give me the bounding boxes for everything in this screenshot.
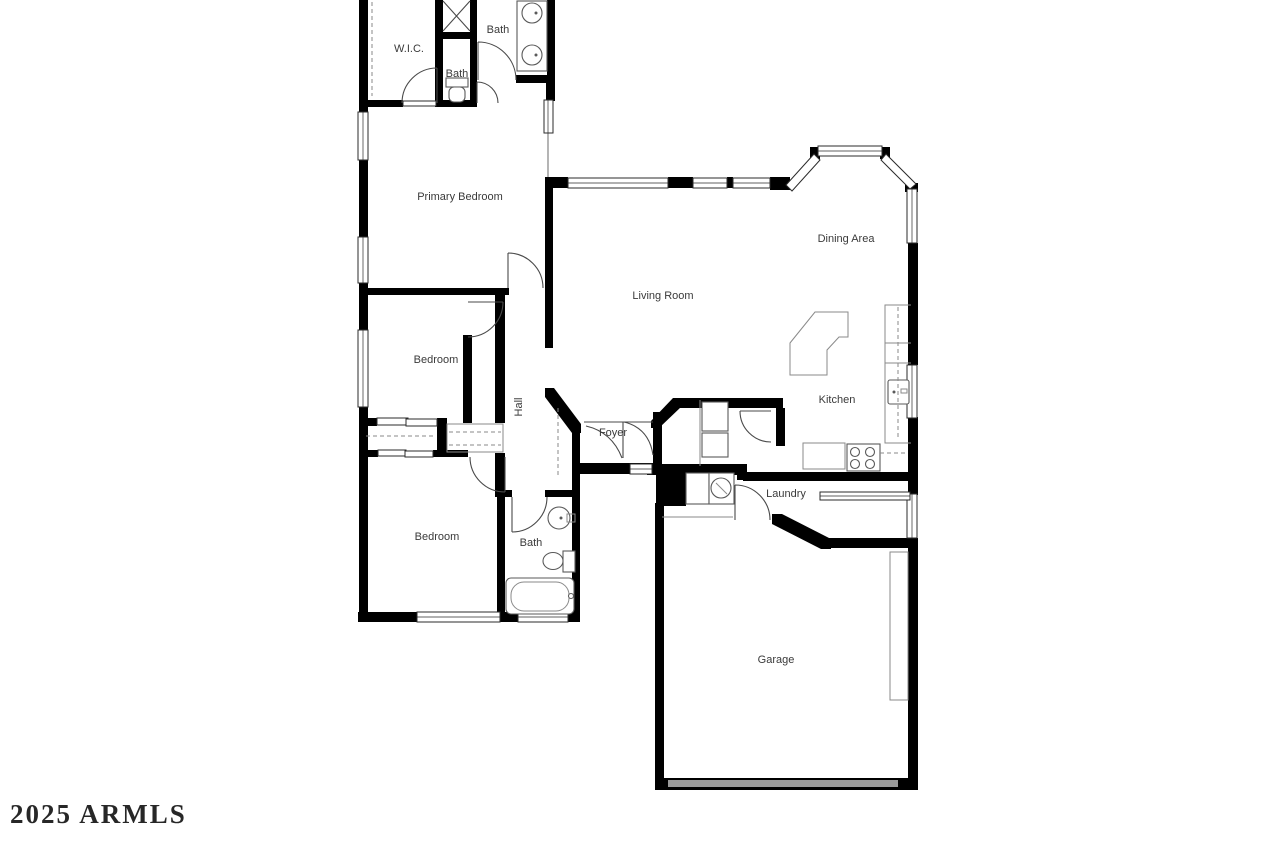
wall-shower-bath bbox=[470, 0, 477, 107]
door-pantry bbox=[740, 411, 771, 442]
door-primary-bedroom bbox=[508, 253, 543, 288]
wall-east-kitchen-lower bbox=[908, 417, 918, 495]
pantry-shelf-2 bbox=[702, 433, 728, 457]
wall-garage-north bbox=[825, 538, 915, 548]
closet-slider-bedroom3-b bbox=[405, 451, 433, 457]
wall-hall-east bbox=[545, 188, 553, 348]
wall-hall-west-upper bbox=[495, 295, 505, 423]
door-laundry bbox=[735, 485, 770, 520]
room-label-hall: Hall bbox=[513, 398, 525, 417]
wall-hall-angled bbox=[545, 388, 581, 433]
wall-garage-angled bbox=[772, 514, 831, 549]
wall-closet-top bbox=[359, 418, 377, 426]
room-label-bath-primary: Bath bbox=[487, 24, 510, 36]
pantry-shelf-1 bbox=[702, 402, 728, 431]
door-wic bbox=[402, 68, 437, 103]
room-label-bath-toilet: Bath bbox=[446, 68, 469, 80]
linen-shelf-lines bbox=[449, 432, 501, 445]
armls-watermark: 2025 ARMLS bbox=[10, 799, 187, 829]
room-label-primary-bedroom: Primary Bedroom bbox=[417, 191, 503, 203]
shower-icon bbox=[443, 1, 470, 31]
kitchen-counter-south bbox=[803, 443, 845, 469]
room-label-wic: W.I.C. bbox=[394, 43, 424, 55]
wall-primary-south bbox=[359, 288, 509, 295]
sink-icon-2 bbox=[522, 45, 542, 65]
door-bath-primary bbox=[478, 42, 516, 80]
room-label-kitchen: Kitchen bbox=[819, 394, 856, 406]
wall-living-north-mid bbox=[668, 177, 693, 188]
room-label-bedroom-middle: Bedroom bbox=[414, 354, 459, 366]
wall-garage-west bbox=[655, 503, 664, 790]
wall-west bbox=[359, 0, 368, 613]
wall-bath-east-jog bbox=[546, 83, 555, 101]
wall-bath2-north-stub bbox=[505, 490, 512, 497]
wall-living-nw bbox=[545, 177, 568, 188]
wic-door-threshold bbox=[403, 101, 436, 106]
wall-wic-south bbox=[359, 100, 403, 107]
wall-shower-bottom bbox=[435, 32, 477, 39]
doors-layer bbox=[402, 42, 771, 532]
kitchen-island bbox=[790, 312, 848, 375]
wall-window-jog bbox=[727, 177, 733, 188]
washer-icon bbox=[686, 473, 709, 504]
bath2-toilet-bowl bbox=[543, 553, 563, 570]
room-label-garage: Garage bbox=[758, 654, 795, 666]
wall-wic-shower bbox=[435, 0, 443, 107]
closet-slider-bedroom2-a bbox=[377, 418, 408, 425]
room-label-living-room: Living Room bbox=[632, 290, 693, 302]
window-bay-left bbox=[786, 154, 820, 191]
window-bay-right bbox=[881, 154, 916, 189]
door-bath-hall bbox=[512, 497, 547, 532]
toilet-bowl-top bbox=[449, 87, 465, 102]
room-label-laundry: Laundry bbox=[766, 488, 806, 500]
floor-plan-svg: W.I.C. Bath Bath Primary Bedroom Bedroom… bbox=[0, 0, 1280, 853]
garage-door bbox=[668, 780, 898, 787]
wall-bedroom3-east bbox=[497, 457, 505, 622]
room-label-bedroom-lower: Bedroom bbox=[415, 531, 460, 543]
wall-bath2-north bbox=[545, 490, 580, 497]
wall-utility-block bbox=[656, 467, 686, 506]
wall-pantry-east bbox=[776, 408, 785, 446]
wall-garage-east bbox=[908, 538, 918, 790]
closet-slider-bedroom2-b bbox=[406, 419, 437, 426]
floor-plan-page: W.I.C. Bath Bath Primary Bedroom Bedroom… bbox=[0, 0, 1280, 853]
wall-bedroom3-north-a bbox=[359, 450, 378, 457]
hall-linen-closet bbox=[447, 424, 503, 452]
garage-storage-nook bbox=[890, 552, 908, 700]
room-label-foyer: Foyer bbox=[599, 427, 627, 439]
closet-slider-bedroom3-a bbox=[378, 450, 406, 456]
wall-bedroom2-east bbox=[463, 335, 472, 423]
wall-kitchen-south bbox=[743, 472, 915, 481]
bath2-toilet-tank bbox=[563, 551, 575, 572]
door-toilet-room bbox=[477, 82, 498, 103]
sink-icon-1 bbox=[522, 3, 542, 23]
room-label-bath-hall: Bath bbox=[520, 537, 543, 549]
wall-bedroom3-north-b bbox=[433, 450, 468, 457]
wall-east-dining-kitchen bbox=[908, 243, 918, 365]
room-label-dining-area: Dining Area bbox=[818, 233, 876, 245]
window-east-upper bbox=[544, 100, 553, 133]
